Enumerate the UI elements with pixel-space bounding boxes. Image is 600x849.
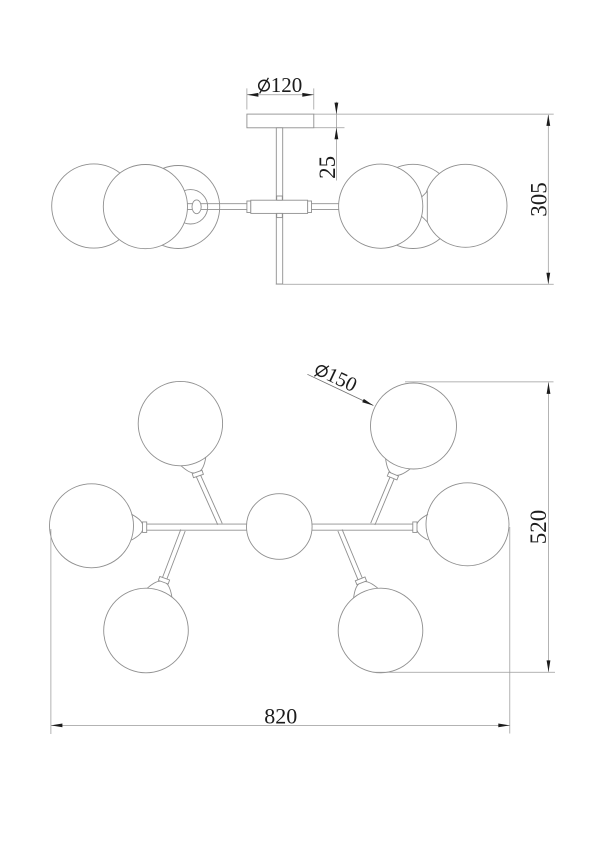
svg-text:25: 25 xyxy=(315,156,340,179)
svg-text:820: 820 xyxy=(264,704,297,729)
svg-text:520: 520 xyxy=(526,510,551,545)
svg-text:120: 120 xyxy=(271,73,303,97)
svg-text:305: 305 xyxy=(527,182,552,217)
